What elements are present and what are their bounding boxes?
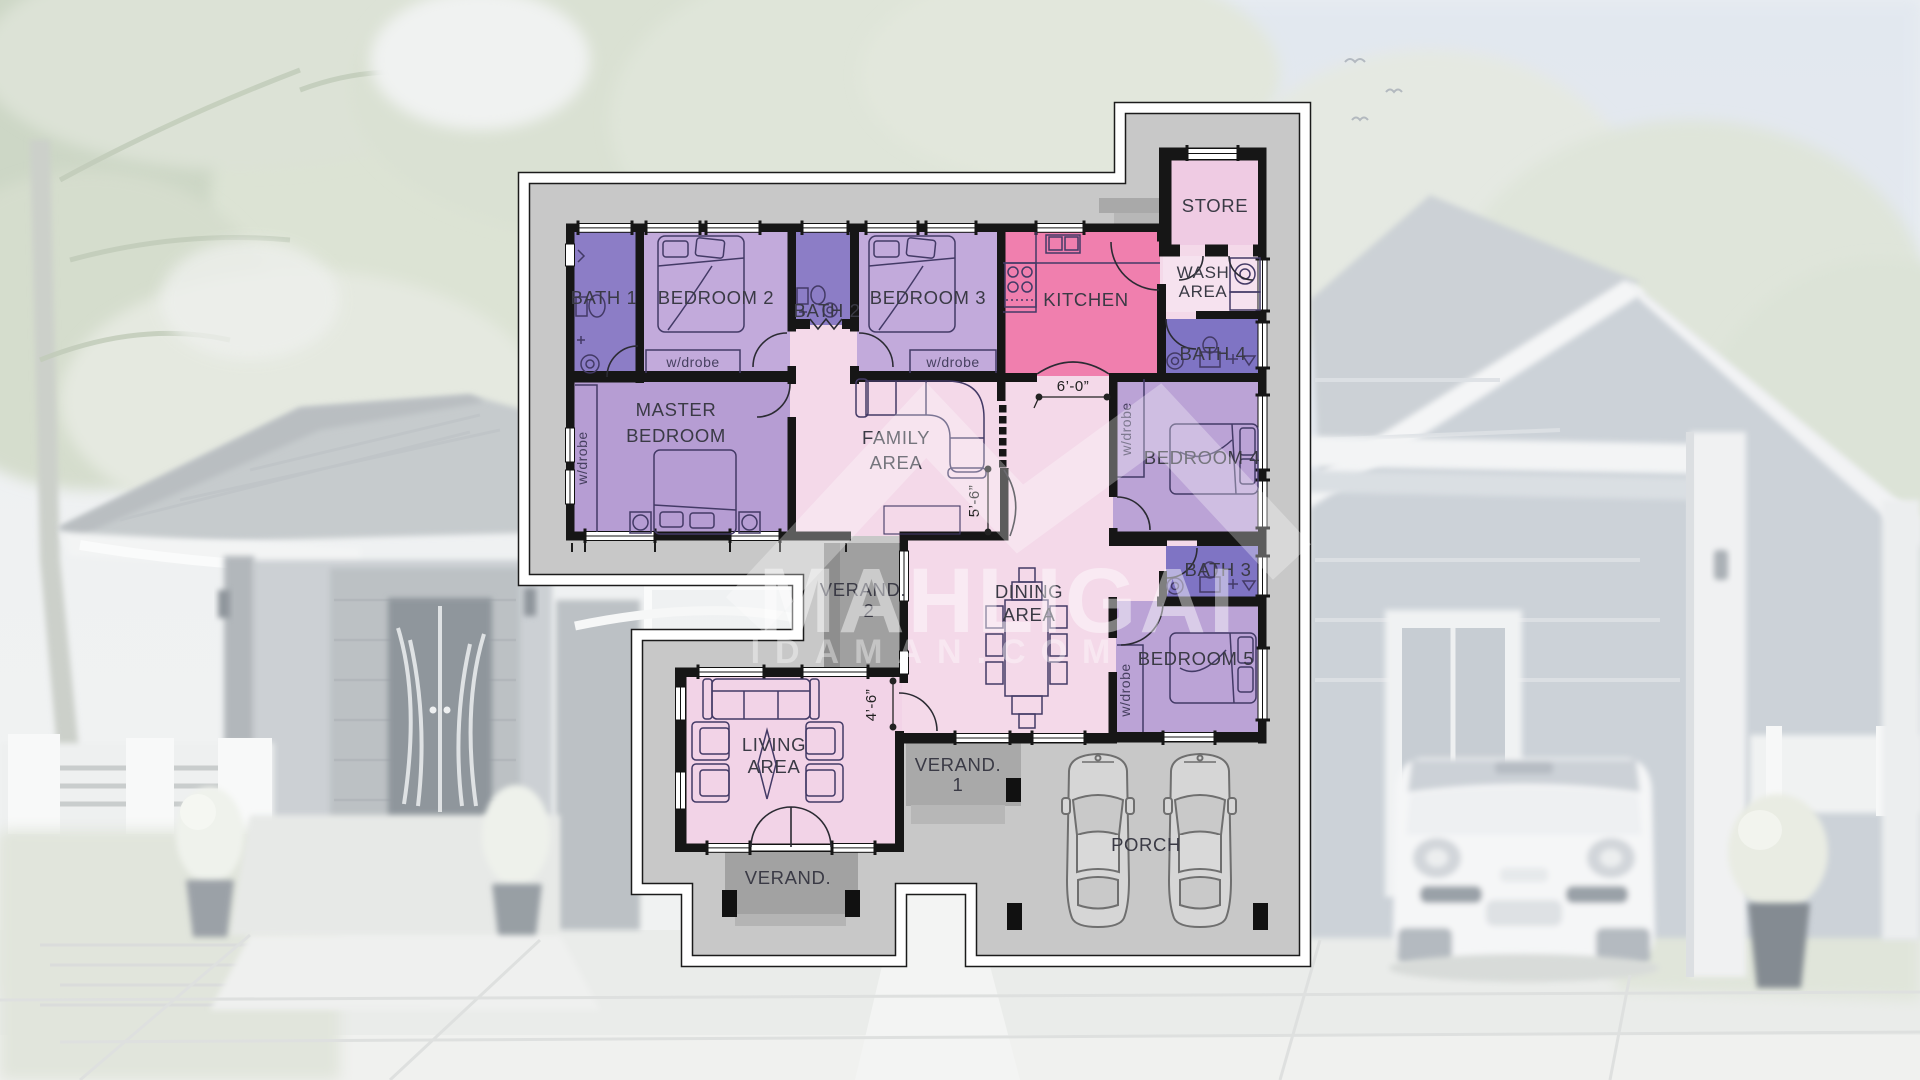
svg-text:IDAMAN.COM: IDAMAN.COM (751, 633, 1126, 671)
svg-text:PORCH: PORCH (1111, 834, 1181, 855)
svg-text:BEDROOM: BEDROOM (626, 425, 726, 446)
svg-text:1: 1 (953, 774, 964, 795)
svg-text:WASH: WASH (1177, 263, 1230, 282)
svg-text:VERAND.: VERAND. (915, 754, 1001, 775)
svg-text:4’-6”: 4’-6” (863, 689, 880, 722)
svg-text:6’-0”: 6’-0” (1057, 378, 1090, 395)
svg-text:BATH 2: BATH 2 (794, 300, 861, 321)
svg-text:VERAND.: VERAND. (745, 867, 831, 888)
svg-text:BATH 4: BATH 4 (1180, 343, 1247, 364)
svg-text:MASTER: MASTER (636, 399, 717, 420)
svg-text:LIVING: LIVING (742, 734, 806, 755)
svg-text:BEDROOM 2: BEDROOM 2 (658, 287, 774, 308)
svg-text:KITCHEN: KITCHEN (1043, 289, 1128, 310)
svg-text:w/drobe: w/drobe (574, 431, 590, 485)
svg-text:STORE: STORE (1182, 195, 1248, 216)
svg-text:w/drobe: w/drobe (665, 354, 719, 370)
svg-text:AREA: AREA (748, 756, 801, 777)
svg-text:AREA: AREA (1179, 282, 1228, 301)
svg-text:w/drobe: w/drobe (1117, 663, 1133, 717)
svg-text:BEDROOM 3: BEDROOM 3 (870, 287, 986, 308)
svg-text:BATH 1: BATH 1 (571, 287, 638, 308)
svg-text:w/drobe: w/drobe (925, 354, 979, 370)
